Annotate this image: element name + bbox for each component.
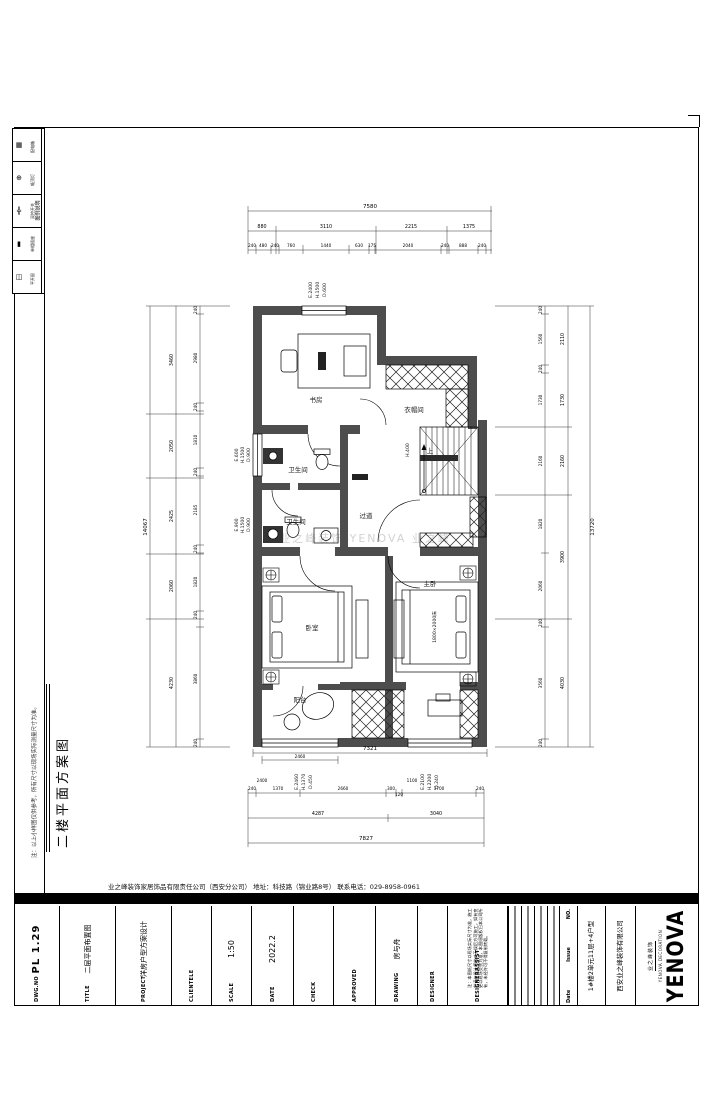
dim-label: 7321: [363, 746, 377, 752]
dim-label: 240: [193, 306, 198, 314]
dim-label: 1810: [193, 434, 198, 445]
room-label: 过道: [360, 511, 374, 520]
title-block: DWG.NO PL 1.29 TITLE 二层平面布置图 PROJECT 洋房户…: [14, 906, 699, 1006]
dim-label: 2060: [538, 580, 543, 591]
dim-label: 240: [478, 243, 486, 248]
dim-label: 240: [441, 243, 449, 248]
project-name: 1#楼2单元11层+4户型: [588, 920, 595, 991]
dim-label: 2110: [560, 333, 566, 345]
legend-symbol-icon: ╬: [13, 208, 25, 215]
revision-header: Issue: [566, 947, 572, 962]
dim-label: 7827: [359, 836, 373, 842]
field-value: PL 1.29: [31, 924, 43, 973]
dim-label: 240: [248, 786, 256, 791]
dim-label: 240: [193, 611, 198, 619]
dim-label: 2660: [338, 786, 349, 791]
dim-label: 240: [193, 468, 198, 476]
stair-direction-label: 上: [427, 446, 434, 455]
dim-label: 480: [259, 243, 267, 248]
window-annot: E.2100: [420, 774, 426, 790]
dim-label: 13720: [590, 518, 596, 536]
window-annot: E.2460: [294, 774, 300, 790]
dim-label: 2160: [538, 455, 543, 466]
room-label: 卫生间: [288, 465, 308, 474]
window-annot: D.240: [434, 775, 440, 789]
dim-label: 2425: [169, 510, 175, 522]
dim-label: 240: [538, 365, 543, 373]
dim-label: 14067: [143, 518, 149, 536]
legend-header: 图例说明: [41, 129, 44, 293]
dim-label: 2400: [257, 778, 268, 783]
dim-label: 1820: [538, 518, 543, 529]
field-label: DESIGNER: [430, 971, 436, 1002]
dim-label: 2185: [193, 504, 198, 515]
dim-label: 3860: [193, 673, 198, 684]
legend-row: ⊕ 吸顶灯: [13, 162, 41, 195]
field-dwg-no: DWG.NO PL 1.29: [15, 906, 59, 1005]
dim-label: 240: [193, 403, 198, 411]
field-label: DESIGNERASSIST: [475, 949, 481, 1002]
dim-label: 240: [476, 786, 484, 791]
room-label: 衣帽间: [404, 405, 424, 414]
field-value: 二层平面布置图: [83, 924, 91, 973]
dim-label: 2160: [560, 455, 566, 467]
field-label: DATE: [270, 986, 276, 1002]
margin-note: 注：以上小样图仅供参考，所有尺寸以现场实际测量尺寸为准。: [30, 523, 38, 858]
window-annot: D.900: [246, 518, 252, 532]
room-label: 卧室: [306, 623, 320, 632]
legend-label: 吸顶灯: [30, 170, 36, 186]
field-label: SCALE: [229, 982, 235, 1001]
dim-label: 1730: [538, 394, 543, 405]
logo-cn-text: 业之峰装饰: [647, 941, 656, 971]
field-value: 2022.2: [268, 935, 277, 963]
dim-label: 4230: [169, 677, 175, 689]
drawing-page: ▦ 配电箱 ⊕ 吸顶灯 ╬ 双控开关 ▮ 单相插座 ◫ 平开窗 图例说明 注：以…: [0, 0, 714, 1103]
dim-label: 888: [459, 243, 467, 248]
field-label: DWG.NO: [34, 976, 40, 1002]
dim-label: 2215: [405, 224, 417, 230]
field-date: DATE 2022.2: [251, 906, 293, 1005]
dim-label: 2060: [169, 580, 175, 592]
dimension-labels: 7580 880 3110 2215 1375 240 480 240 760 …: [143, 204, 596, 842]
title-rule: [46, 684, 47, 852]
dim-label: 1730: [560, 394, 566, 406]
project-name-cell: 1#楼2单元11层+4户型: [577, 906, 605, 1005]
field-value: 洋房户型方案设计: [139, 921, 147, 977]
company-name-cell: 西安业之峰装饰有限公司: [605, 906, 635, 1005]
dim-label: 1820: [193, 576, 198, 587]
legend-label: 平开窗: [30, 269, 36, 285]
window-annot: D.600: [322, 283, 328, 297]
dim-label: 2040: [403, 243, 414, 248]
legend-symbol-icon: ◫: [13, 274, 25, 281]
legend-symbol-icon: ▦: [13, 142, 25, 149]
dim-label: 2980: [193, 352, 198, 363]
field-label: PROJECT: [141, 975, 147, 1001]
dim-label: 120: [395, 792, 403, 797]
field-clientele: CLIENTELE: [171, 906, 211, 1005]
field-title: TITLE 二层平面布置图: [59, 906, 115, 1005]
legend-label: 单相插座: [30, 236, 36, 252]
dim-label: 3900: [560, 551, 566, 563]
window-annot: E.900: [234, 518, 240, 531]
floor-plan: 7580 880 3110 2215 1375 240 480 240 760 …: [130, 190, 610, 870]
field-label: DRAWING: [394, 972, 400, 1001]
revision-header: NO.: [566, 909, 572, 919]
field-drawing: DRAWING 房与舟: [375, 906, 417, 1005]
window-annot: H.1500: [315, 282, 321, 299]
dim-label: 3040: [430, 811, 442, 817]
drawing-title-vertical: 二楼平面方案图: [52, 678, 71, 848]
legend-symbol-icon: ⊕: [13, 175, 25, 182]
staircase: [420, 427, 478, 495]
window-annot: H.1500: [240, 447, 246, 464]
room-label: 主卧: [424, 579, 438, 588]
dim-label: 175: [368, 243, 376, 248]
dim-label: 630: [355, 243, 363, 248]
legend-row: ▮ 单相插座: [13, 228, 41, 261]
room-label: 书房: [310, 395, 323, 404]
revision-header: Date: [566, 989, 572, 1002]
logo-sub-text: YENOVA DECORATION: [658, 929, 663, 981]
window-annot: E.2400: [308, 282, 314, 298]
legend-symbol-icon: ▮: [13, 241, 25, 248]
corner-mark: [688, 115, 700, 127]
logo-cell: 业之峰装饰 YENOVA DECORATION YENOVA: [635, 906, 698, 1005]
legend-row: ◫ 平开窗: [13, 261, 41, 293]
titleblock-band: [14, 893, 699, 904]
yenova-logo: YENOVA: [663, 909, 688, 1001]
dim-label: 300: [387, 786, 395, 791]
dim-label: 760: [287, 243, 295, 248]
field-label: APPROVED: [352, 968, 358, 1001]
height-annot: H.400: [405, 443, 411, 457]
window-annot: E.600: [234, 448, 240, 461]
field-value: 房与舟: [392, 938, 400, 959]
field-label: CLIENTELE: [189, 969, 195, 1001]
furniture-layer: [262, 334, 478, 730]
company-info-line: 业之峰装饰家居饰品有限责任公司（西安分公司） 地址：科技路（锦业路8号） 联系电…: [108, 881, 668, 891]
dim-label: 1370: [273, 786, 284, 791]
window-annot: H.1500: [240, 517, 246, 534]
legend-table: ▦ 配电箱 ⊕ 吸顶灯 ╬ 双控开关 ▮ 单相插座 ◫ 平开窗 图例说明: [12, 128, 45, 294]
window-annot: H.2200: [427, 774, 433, 791]
room-label: 卫生间: [286, 517, 306, 526]
dim-label: 240: [193, 545, 198, 553]
dim-label: 240: [538, 306, 543, 314]
field-label: TITLE: [85, 985, 91, 1002]
dim-label: 4030: [560, 677, 566, 689]
window-annot: H.1370: [301, 774, 307, 791]
dim-label: 1375: [463, 224, 475, 230]
dim-label: 4287: [312, 811, 324, 817]
dim-label: 240: [538, 619, 543, 627]
legend-label: 配电箱: [30, 137, 36, 153]
window-annot: D.450: [308, 775, 314, 789]
dim-label: 3460: [169, 354, 175, 366]
dim-label: 2050: [169, 440, 175, 452]
dim-label: 240: [193, 739, 198, 747]
dim-label: 3110: [320, 224, 332, 230]
field-check: CHECK: [293, 906, 333, 1005]
room-label: 阳台: [294, 695, 307, 704]
dim-label: 1440: [321, 243, 332, 248]
field-approved: APPROVED: [333, 906, 375, 1005]
dim-label: 3560: [538, 677, 543, 688]
field-label: CHECK: [311, 981, 317, 1001]
dim-label: 1560: [538, 333, 543, 344]
company-name: 西安业之峰装饰有限公司: [617, 920, 624, 992]
dim-label: 2460: [295, 754, 306, 759]
dim-label: 7580: [363, 204, 377, 210]
title-rule: [49, 684, 50, 852]
bed-size-label: 1800×2000床: [431, 611, 438, 643]
field-value: 1:50: [227, 940, 236, 958]
field-project: PROJECT 洋房户型方案设计: [115, 906, 171, 1005]
field-designer: DESIGNER: [417, 906, 447, 1005]
field-designer-assist: DESIGNERASSIST 注：本图纸尺寸以现场实际尺寸为准，施工前请与设计师…: [447, 906, 507, 1005]
window-annot: D.900: [246, 448, 252, 462]
dim-label: 240: [248, 243, 256, 248]
legend-row: ▦ 配电箱: [13, 129, 41, 162]
dim-label: 240: [271, 243, 279, 248]
field-scale: SCALE 1:50: [211, 906, 251, 1005]
dim-label: 1100: [407, 778, 418, 783]
dim-label: 240: [538, 739, 543, 747]
dim-label: 880: [257, 224, 266, 230]
